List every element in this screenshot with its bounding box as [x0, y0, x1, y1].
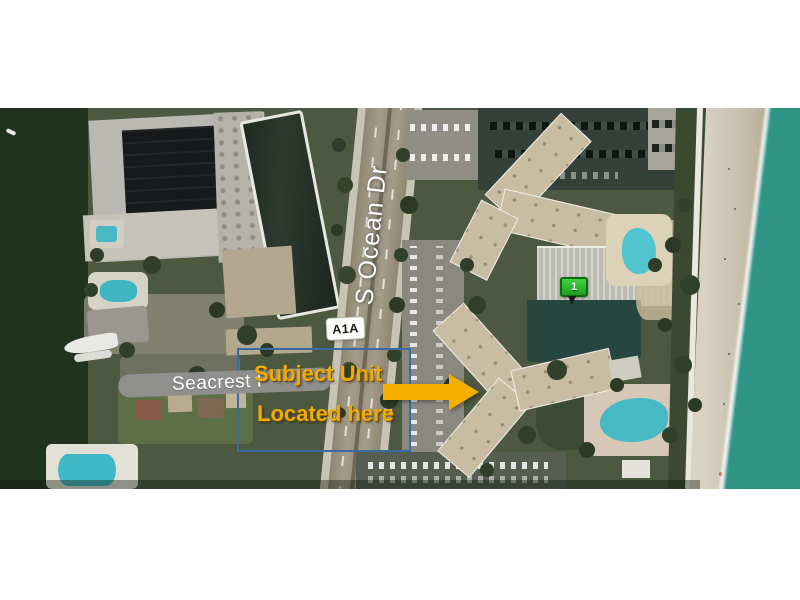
parking-lot-upper-east	[406, 110, 480, 180]
tree-cluster-mid	[460, 258, 474, 272]
house-roof	[198, 398, 224, 418]
beachgoers-dots	[728, 168, 730, 170]
bottom-tree-shadow	[0, 480, 700, 489]
location-arrow-icon	[383, 374, 481, 410]
house-roof	[136, 400, 163, 421]
inland-waterway	[0, 108, 88, 489]
listing-map-page: Seacrest P S Ocean Dr A1A Subject Unit L…	[0, 0, 800, 600]
small-white-shed	[622, 460, 650, 478]
route-shield-a1a-icon: A1A	[325, 316, 365, 341]
parked-cars-column	[410, 246, 417, 446]
tree-cluster-left	[90, 248, 104, 262]
callout-subject-unit: Subject Unit	[254, 361, 382, 387]
tree-cluster-beachside	[648, 258, 662, 272]
pool-2	[100, 280, 137, 302]
parked-cars-row	[410, 124, 476, 131]
unit-marker-label: 1	[571, 281, 577, 293]
arrow-shaft	[383, 384, 451, 400]
callout-located-here: Located here	[257, 401, 394, 427]
beige-roof-section	[222, 246, 297, 319]
pool-small	[96, 226, 117, 242]
route-shield-text: A1A	[332, 321, 359, 336]
arrow-head	[449, 374, 479, 410]
house-roof	[168, 394, 193, 413]
parked-cars-row	[410, 154, 476, 161]
dark-roof-building	[122, 126, 218, 217]
unit-marker-icon: 1	[560, 277, 588, 297]
subject-condo-east-annex	[608, 356, 641, 383]
parked-cars-column	[436, 246, 443, 446]
unit-marker-pointer	[568, 296, 576, 305]
tree-cluster-roadside	[332, 138, 346, 152]
